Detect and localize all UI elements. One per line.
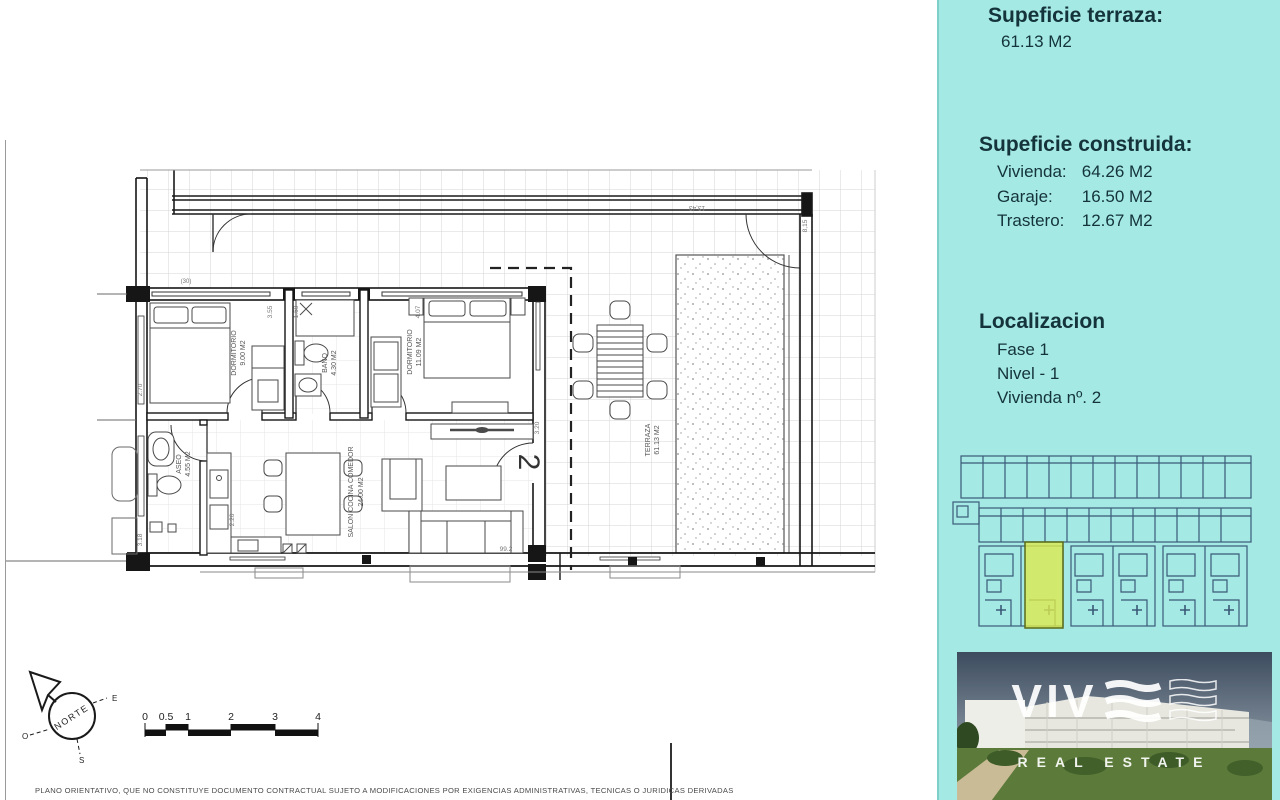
room-label-dormitorio1: DORMITORIO	[231, 330, 238, 376]
vive-logo-outline-waves-icon	[1168, 679, 1218, 723]
vive-logo: VIV	[957, 678, 1272, 724]
localizacion-nivel: Nivel - 1	[997, 364, 1059, 384]
terrace-planter	[676, 255, 789, 553]
dim-99-2: 99.2	[500, 546, 513, 553]
brochure-page: DORMITORIO 9.00 M2 BAÑO 4.30 M2 DORMITOR…	[0, 0, 1280, 800]
dim-3-55: 3.55	[267, 305, 274, 318]
highlighted-unit	[1025, 542, 1063, 628]
vive-logo-tagline: REAL ESTATE	[957, 754, 1272, 770]
room-label-dormitorio2: DORMITORIO	[407, 329, 414, 375]
bedroom1-furniture	[150, 303, 284, 410]
localizacion-vivienda: Vivienda nº. 2	[997, 388, 1101, 408]
room-label-salon: SALON COCINA COMEDOR	[348, 446, 355, 537]
dim-30: (30)	[181, 279, 192, 285]
construida-value-trastero: 12.67 M2	[1082, 211, 1153, 230]
construida-row-garaje: Garaje: 16.50 M2	[997, 187, 1153, 207]
terraza-value: 61.13 M2	[1001, 32, 1072, 52]
room-area-bano: 4.30 M2	[331, 350, 338, 375]
dim-2-70: 2.70	[137, 383, 144, 396]
room-label-terraza: TERRAZA	[645, 423, 652, 456]
scale-tick-4: 4	[315, 711, 321, 723]
dim-4-07: 4.07	[415, 305, 422, 318]
dim-13-43: 13,43	[688, 204, 705, 211]
scale-tick-2: 2	[228, 711, 234, 723]
dim-3-20: 3.20	[534, 421, 541, 434]
construida-label-garaje: Garaje:	[997, 187, 1077, 207]
terraza-title: Supeficie terraza:	[988, 4, 1163, 28]
room-label-aseo: ASEO	[176, 454, 183, 474]
room-area-dormitorio2: 11.09 M2	[416, 338, 423, 367]
construida-value-vivienda: 64.26 M2	[1082, 162, 1153, 181]
room-area-terraza: 61.13 M2	[654, 425, 661, 454]
vive-logo-letters: VIV	[1011, 678, 1097, 724]
room-area-aseo: 4.55 M2	[185, 451, 192, 476]
site-plan-minimap	[951, 450, 1263, 638]
dim-2-20: 2.20	[229, 513, 236, 526]
localizacion-title: Localizacion	[979, 310, 1105, 334]
room-area-salon: 24.00 M2	[358, 477, 365, 506]
construida-value-garaje: 16.50 M2	[1082, 187, 1153, 206]
scale-bar: 0 0.5 1 2 3 4	[142, 711, 321, 737]
scale-tick-1: 1	[185, 711, 191, 723]
unit-number: 2	[512, 454, 545, 471]
construida-row-trastero: Trastero: 12.67 M2	[997, 211, 1153, 231]
construida-label-vivienda: Vivienda:	[997, 162, 1077, 182]
info-sidebar: Supeficie terraza: 61.13 M2 Supeficie co…	[937, 0, 1280, 800]
page-border-line	[5, 140, 6, 800]
dim-1-60: 1.60	[293, 305, 300, 318]
compass-south-label: S	[79, 756, 84, 765]
construida-label-trastero: Trastero:	[997, 211, 1077, 231]
compass-rose: NORTE E O S	[22, 672, 117, 765]
room-area-dormitorio1: 9.00 M2	[240, 340, 247, 365]
vive-logo-e-waves-icon	[1104, 679, 1162, 723]
dim-8-15: 8,15	[802, 219, 809, 232]
scale-tick-0: 0	[142, 711, 148, 723]
localizacion-fase: Fase 1	[997, 340, 1049, 360]
compass-west-label: O	[22, 732, 28, 741]
disclaimer-text: PLANO ORIENTATIVO, QUE NO CONSTITUYE DOC…	[35, 786, 734, 795]
building-photo-art	[957, 652, 1272, 800]
compass-north-label: NORTE	[52, 702, 90, 732]
scale-tick-05: 0.5	[159, 711, 174, 723]
construida-title: Supeficie construida:	[979, 133, 1193, 157]
dim-3-18: 3.18	[137, 533, 144, 546]
building-photo: VIV REAL ESTATE	[957, 652, 1272, 800]
scale-tick-3: 3	[272, 711, 278, 723]
bedroom2-furniture	[371, 298, 525, 413]
floor-plan: DORMITORIO 9.00 M2 BAÑO 4.30 M2 DORMITOR…	[0, 0, 940, 800]
compass-east-label: E	[112, 694, 117, 703]
room-label-bano: BAÑO	[320, 353, 329, 373]
construida-row-vivienda: Vivienda: 64.26 M2	[997, 162, 1153, 182]
